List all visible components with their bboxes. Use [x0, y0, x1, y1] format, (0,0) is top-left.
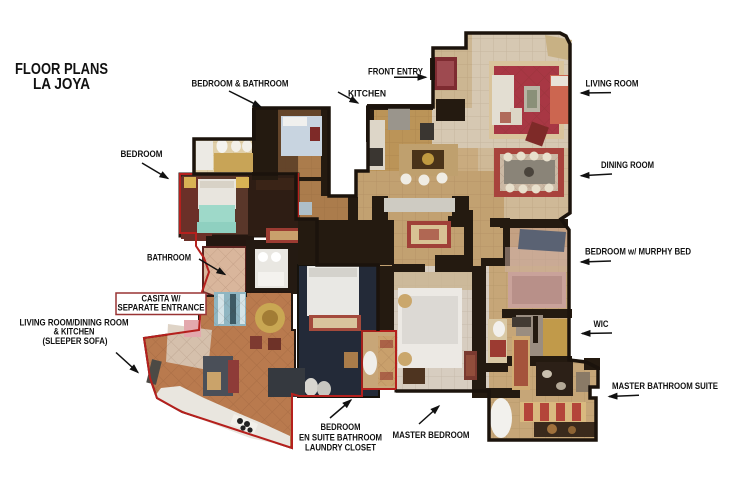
svg-text:KITCHEN: KITCHEN [348, 89, 386, 99]
svg-text:BATHROOM: BATHROOM [147, 253, 191, 263]
svg-text:WIC: WIC [594, 319, 609, 329]
svg-text:SEPARATE ENTRANCE: SEPARATE ENTRANCE [118, 303, 205, 313]
svg-text:BEDROOM w/ MURPHY BED: BEDROOM w/ MURPHY BED [585, 247, 691, 257]
svg-text:LIVING ROOM: LIVING ROOM [586, 79, 639, 89]
svg-text:& KITCHEN: & KITCHEN [54, 327, 95, 337]
svg-text:FRONT ENTRY: FRONT ENTRY [368, 67, 423, 77]
svg-text:BEDROOM: BEDROOM [121, 149, 163, 159]
svg-text:DINING ROOM: DINING ROOM [601, 160, 654, 170]
svg-text:EN SUITE BATHROOM: EN SUITE BATHROOM [299, 433, 382, 443]
svg-text:MASTER BATHROOM SUITE: MASTER BATHROOM SUITE [612, 381, 718, 391]
svg-text:BEDROOM & BATHROOM: BEDROOM & BATHROOM [192, 79, 289, 89]
svg-text:LA JOYA: LA JOYA [33, 76, 90, 93]
svg-text:LAUNDRY CLOSET: LAUNDRY CLOSET [305, 443, 376, 453]
svg-text:MASTER BEDROOM: MASTER BEDROOM [393, 430, 470, 440]
svg-text:(SLEEPER SOFA): (SLEEPER SOFA) [43, 336, 108, 346]
svg-text:BEDROOM: BEDROOM [321, 422, 361, 432]
